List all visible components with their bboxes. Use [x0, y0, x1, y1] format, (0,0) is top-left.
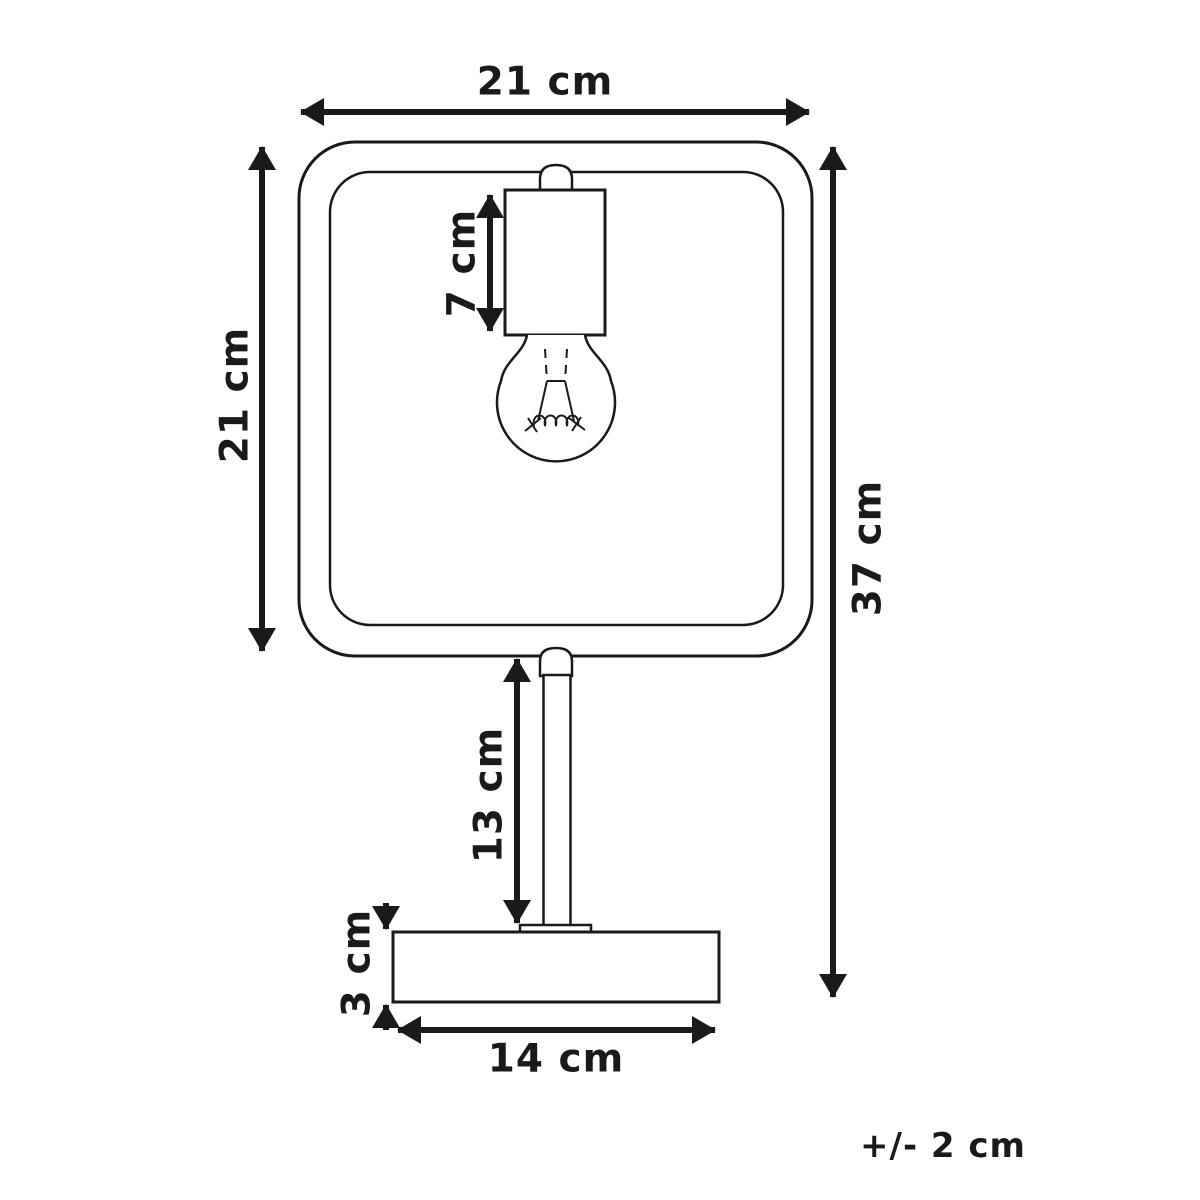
base-height-label: 3 cm: [335, 909, 380, 1017]
lamp-dimension-diagram: 21 cm 21 cm 7 cm 37 cm 13 cm: [0, 0, 1200, 1200]
base-width-label: 14 cm: [488, 1037, 625, 1082]
dimension-socket-height: 7 cm: [440, 195, 491, 331]
lamp-stem: [544, 675, 571, 926]
total-height-label: 37 cm: [846, 480, 891, 617]
frame-height-label: 21 cm: [213, 327, 258, 464]
dimension-stem-height: 13 cm: [467, 659, 518, 923]
lamp-base: [393, 932, 719, 1002]
stem-height-label: 13 cm: [467, 727, 512, 864]
frame-width-label: 21 cm: [477, 60, 614, 105]
dimension-base-width: 14 cm: [398, 1030, 715, 1082]
dimension-drawing-canvas: 21 cm 21 cm 7 cm 37 cm 13 cm: [0, 0, 1200, 1200]
dimension-frame-width: 21 cm: [301, 60, 809, 113]
dimension-total-height: 37 cm: [833, 147, 891, 997]
bulb-socket: [505, 190, 605, 335]
socket-mount-tab: [540, 165, 572, 192]
lamp-drawing: [299, 142, 812, 1002]
dimension-frame-height: 21 cm: [213, 147, 263, 651]
dimension-base-height: 3 cm: [335, 903, 387, 1030]
stem-mount-tab: [540, 648, 572, 676]
socket-height-label: 7 cm: [440, 209, 485, 317]
tolerance-note: +/- 2 cm: [860, 1126, 1026, 1166]
